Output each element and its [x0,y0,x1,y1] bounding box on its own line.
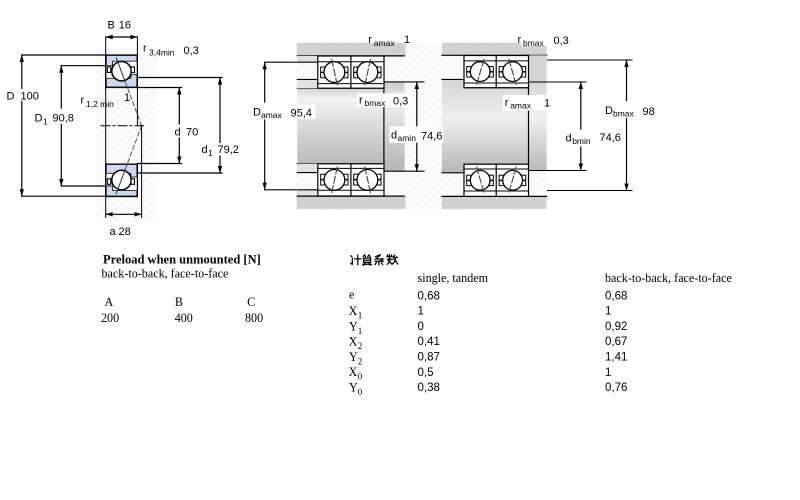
svg-text:Y: Y [349,350,358,364]
svg-text:95,4: 95,4 [291,108,312,120]
svg-text:D: D [35,113,43,125]
svg-text:200: 200 [101,311,119,325]
svg-text:0,41: 0,41 [418,336,440,348]
svg-text:1: 1 [418,306,424,318]
svg-text:1: 1 [544,97,550,109]
svg-text:r: r [359,95,363,107]
svg-text:D: D [605,105,613,117]
svg-text:X: X [349,335,358,349]
svg-text:1: 1 [208,148,213,158]
svg-text:79,2: 79,2 [218,144,239,156]
svg-text:0: 0 [418,321,424,333]
svg-text:0,68: 0,68 [418,290,440,302]
svg-text:D: D [7,90,15,102]
svg-text:0,3: 0,3 [184,45,199,57]
svg-text:d: d [175,127,181,139]
svg-text:d: d [391,130,397,142]
svg-text:400: 400 [175,311,193,325]
svg-text:2: 2 [358,341,363,351]
svg-text:amax: amax [374,38,396,48]
svg-text:16: 16 [119,20,131,32]
svg-text:bmax: bmax [613,108,635,118]
svg-text:bmax: bmax [365,98,387,108]
svg-text:r: r [81,95,85,107]
svg-text:1,2 min: 1,2 min [86,99,114,109]
svg-text:0,92: 0,92 [605,321,627,333]
svg-text:C: C [247,295,255,309]
svg-text:90,8: 90,8 [53,113,74,125]
svg-text:98: 98 [643,106,655,118]
svg-text:single, tandem: single, tandem [418,271,489,285]
svg-text:0,76: 0,76 [605,382,627,394]
svg-text:1: 1 [358,311,363,321]
svg-text:0,87: 0,87 [418,352,440,364]
svg-text:74,6: 74,6 [421,131,442,143]
svg-text:1: 1 [358,326,363,336]
svg-text:2: 2 [358,356,363,366]
svg-text:Y: Y [349,381,358,395]
svg-text:d: d [566,132,572,144]
svg-text:B: B [108,20,115,32]
svg-text:e: e [349,288,354,302]
svg-text:bmin: bmin [572,136,591,146]
svg-text:amax: amax [261,110,283,120]
svg-text:28: 28 [119,226,131,238]
svg-text:r: r [143,43,147,55]
svg-text:A: A [105,295,114,309]
svg-text:amax: amax [510,100,532,110]
svg-text:70: 70 [186,127,198,139]
svg-text:0,5: 0,5 [418,367,434,379]
svg-text:Y: Y [349,319,358,333]
svg-text:1: 1 [404,34,410,46]
svg-text:0: 0 [358,372,363,382]
svg-text:a: a [110,226,117,238]
svg-text:bmax: bmax [523,38,545,48]
svg-text:1,41: 1,41 [605,352,627,364]
svg-text:0,3: 0,3 [554,35,569,47]
svg-text:amin: amin [398,133,417,143]
svg-text:3,4min: 3,4min [149,48,175,58]
svg-text:B: B [175,295,183,309]
svg-text:0,38: 0,38 [418,382,440,394]
svg-text:D: D [253,107,261,119]
svg-text:back-to-back, face-to-face: back-to-back, face-to-face [605,271,732,285]
svg-text:1: 1 [605,367,611,379]
svg-text:0,3: 0,3 [393,96,408,108]
svg-text:r: r [505,97,509,109]
svg-text:1: 1 [124,92,130,104]
svg-text:X: X [349,304,358,318]
svg-text:0: 0 [358,387,363,397]
svg-text:r: r [368,34,372,46]
svg-text:1: 1 [605,306,611,318]
svg-text:0,67: 0,67 [605,336,627,348]
svg-text:100: 100 [21,90,39,102]
svg-text:X: X [349,365,358,379]
svg-text:Preload when unmounted [N]: Preload when unmounted [N] [103,253,261,267]
svg-text:d: d [202,144,208,156]
svg-text:74,6: 74,6 [600,132,621,144]
svg-text:back-to-back, face-to-face: back-to-back, face-to-face [102,267,229,281]
svg-text:0,68: 0,68 [605,290,627,302]
svg-text:800: 800 [245,311,263,325]
svg-text:1: 1 [43,117,48,127]
svg-text:r: r [518,34,522,46]
